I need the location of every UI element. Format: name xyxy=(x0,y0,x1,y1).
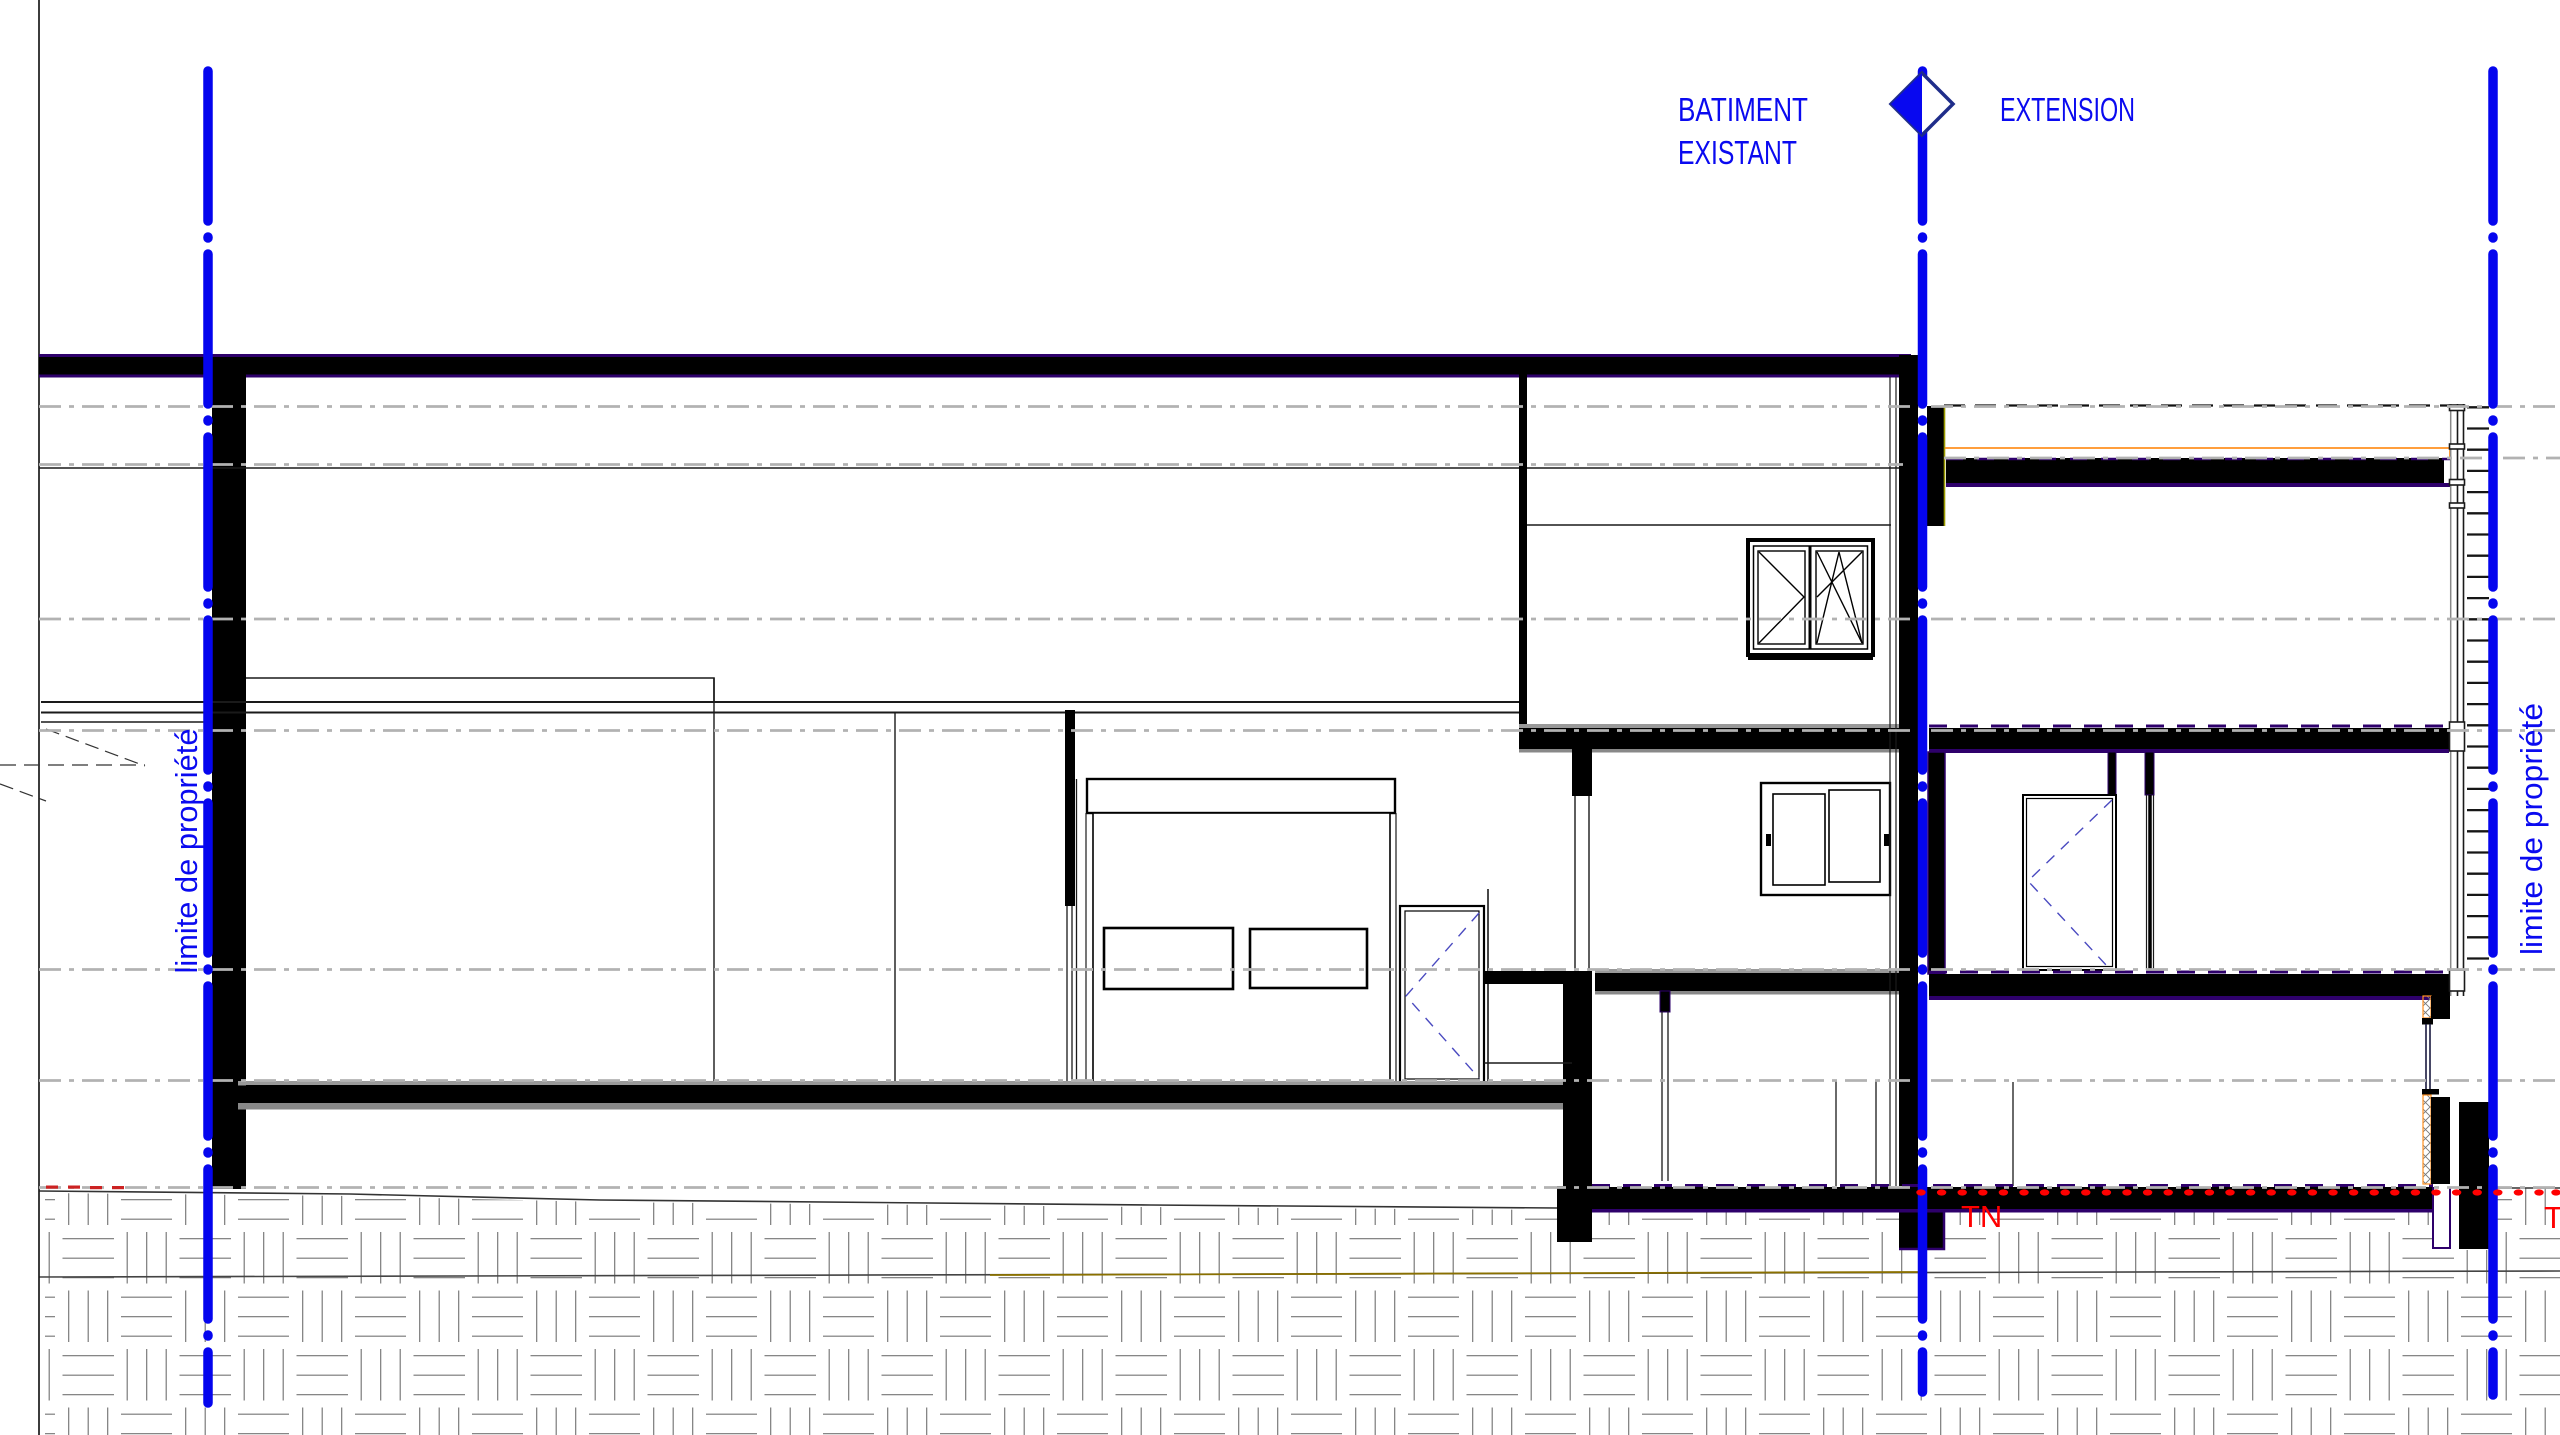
svg-text:TN: TN xyxy=(2544,1200,2560,1235)
svg-text:EXISTANT: EXISTANT xyxy=(1678,134,1797,171)
svg-text:limite de propriété: limite de propriété xyxy=(169,729,204,974)
svg-text:BATIMENT: BATIMENT xyxy=(1678,91,1808,128)
svg-text:EXTENSION: EXTENSION xyxy=(2000,91,2135,128)
svg-text:TN: TN xyxy=(1961,1199,2002,1234)
svg-text:limite de propriété: limite de propriété xyxy=(2514,703,2549,955)
